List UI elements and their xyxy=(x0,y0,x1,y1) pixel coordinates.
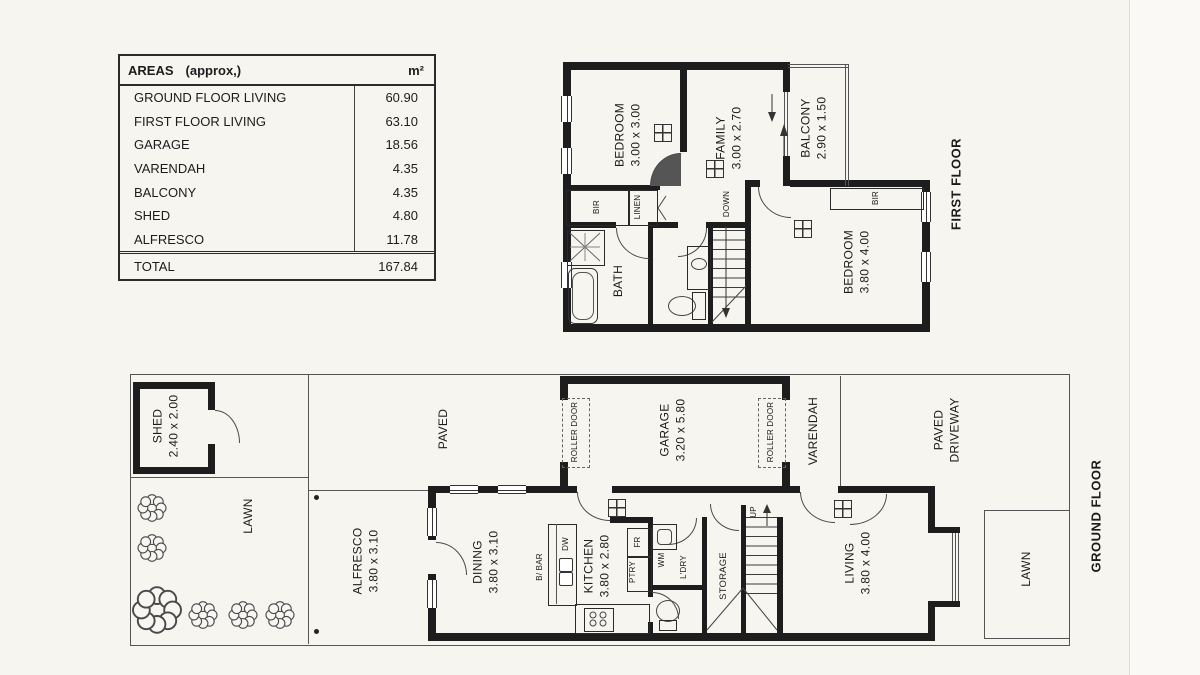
wall xyxy=(610,517,650,523)
vent-icon xyxy=(608,499,626,517)
wall xyxy=(560,376,568,400)
scan-edge xyxy=(1130,0,1200,675)
ground-floor-plan: SHED 2.40 x 2.00 LAWN PAVED GARAGE 3.20 … xyxy=(0,0,1200,675)
fr-label: FR xyxy=(633,536,643,547)
wall xyxy=(526,486,577,493)
wall xyxy=(648,585,707,590)
shed-door-gap xyxy=(208,410,215,444)
wall xyxy=(838,486,935,493)
varendah-edge xyxy=(840,376,841,488)
window xyxy=(427,508,437,536)
window xyxy=(498,485,526,494)
up-label: UP xyxy=(749,506,759,518)
ptry-label: PTRY xyxy=(628,561,638,583)
alfresco-post xyxy=(314,495,319,500)
kitchen-label: KITCHEN 3.80 x 2.80 xyxy=(581,535,612,598)
garage-label: GARAGE 3.20 x 5.80 xyxy=(657,399,688,462)
roller-door-label: ROLLER DOOR xyxy=(766,402,776,462)
label-line: PAVED xyxy=(931,397,947,462)
toilet-tank xyxy=(659,620,677,631)
scan-edge-line xyxy=(1129,0,1130,675)
wall xyxy=(478,486,498,493)
paved-label: PAVED xyxy=(436,409,452,449)
alfresco-label: ALFRESCO 3.80 x 3.10 xyxy=(350,527,381,594)
wm-label: WM xyxy=(657,553,667,568)
dining-label: DINING 3.80 x 3.10 xyxy=(470,531,501,594)
label-line: DRIVEWAY xyxy=(947,397,963,462)
wall xyxy=(928,607,935,641)
up-arrow-icon xyxy=(762,502,772,528)
wall xyxy=(928,493,935,527)
kitchen-sink xyxy=(559,572,573,586)
window xyxy=(450,485,478,494)
bay-window xyxy=(958,533,959,601)
wall xyxy=(928,601,960,607)
living-label: LIVING 3.80 x 4.00 xyxy=(842,532,873,595)
room-dims: 3.80 x 2.80 xyxy=(597,535,613,598)
tree-icon xyxy=(133,586,181,634)
vent-icon xyxy=(834,500,852,518)
room-name: GARAGE xyxy=(657,399,673,462)
toilet-bowl xyxy=(656,600,680,622)
yard-divider xyxy=(308,374,309,644)
shed-label: SHED 2.40 x 2.00 xyxy=(150,395,181,458)
lawn-label: LAWN xyxy=(241,498,257,533)
door-gap xyxy=(428,540,436,574)
yard-divider xyxy=(130,477,308,478)
tree-icon xyxy=(138,534,166,562)
bench-divider xyxy=(556,524,557,604)
room-name: SHED xyxy=(150,395,166,458)
bay-window xyxy=(955,533,956,601)
tree-icon xyxy=(229,601,257,629)
bbar-label: B/ BAR xyxy=(535,553,545,580)
bay-window xyxy=(952,533,953,601)
tree-icon xyxy=(189,601,217,629)
room-name: ALFRESCO xyxy=(350,527,366,594)
room-name: LIVING xyxy=(842,532,858,595)
floor-plan-sheet: AREAS (approx,) m² GROUND FLOOR LIVING 6… xyxy=(0,0,1200,675)
ground-floor-caption: GROUND FLOOR xyxy=(1089,460,1106,573)
alfresco-post xyxy=(314,629,319,634)
tree-icon xyxy=(266,601,294,629)
tree-icon xyxy=(138,494,166,522)
room-name: DINING xyxy=(470,531,486,594)
kitchen-sink xyxy=(559,558,573,572)
room-name: KITCHEN xyxy=(581,535,597,598)
wall xyxy=(428,633,935,641)
room-dims: 3.80 x 4.00 xyxy=(858,532,874,595)
storage-label: STORAGE xyxy=(718,552,730,600)
room-dims: 3.20 x 5.80 xyxy=(673,399,689,462)
room-dims: 3.80 x 3.10 xyxy=(486,531,502,594)
cooktop-burners-icon xyxy=(585,609,611,629)
stairs xyxy=(746,517,777,597)
wall xyxy=(782,376,790,400)
lawn-label: LAWN xyxy=(1019,551,1035,586)
washing-machine-door-icon xyxy=(657,529,672,545)
roller-door-label: ROLLER DOOR xyxy=(570,402,580,462)
window xyxy=(427,580,437,608)
washing-machine xyxy=(652,524,677,550)
wall xyxy=(612,486,800,493)
wall xyxy=(560,376,790,384)
alfresco-edge xyxy=(308,490,429,491)
paved-driveway-label: PAVED DRIVEWAY xyxy=(931,397,962,462)
room-dims: 3.80 x 3.10 xyxy=(366,527,382,594)
ldry-label: L'DRY xyxy=(679,555,689,579)
dw-label: DW xyxy=(561,537,571,551)
understair-line xyxy=(705,586,779,632)
varendah-label: VARENDAH xyxy=(806,397,822,465)
room-dims: 2.40 x 2.00 xyxy=(166,395,182,458)
